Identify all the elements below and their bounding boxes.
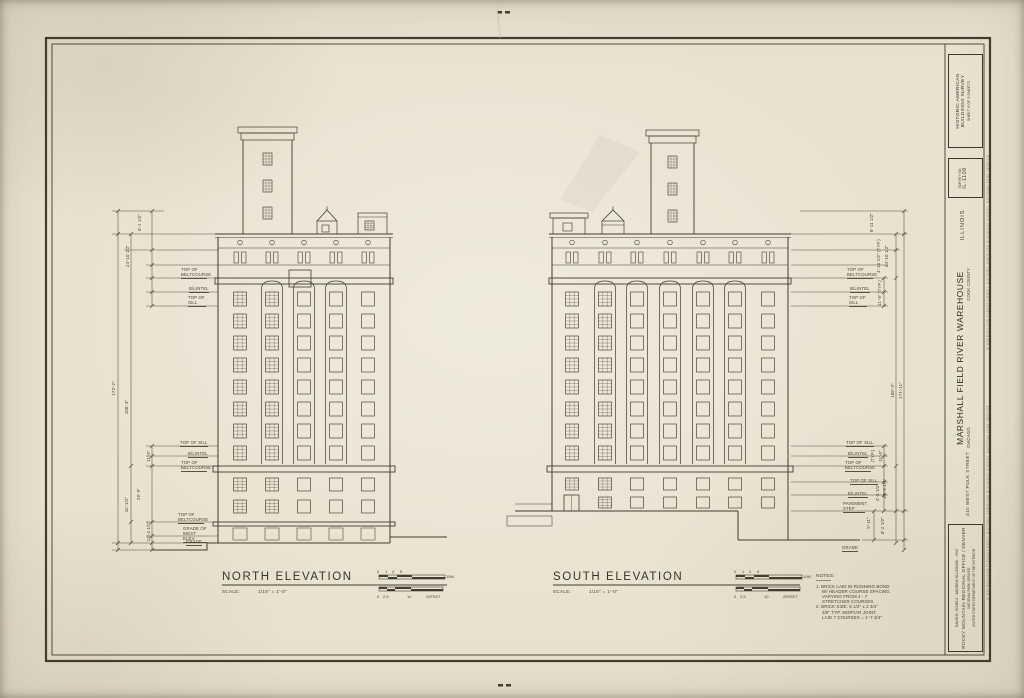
- south-meter-tick: 0: [734, 569, 736, 574]
- north-meter-tick: 10M: [446, 574, 454, 579]
- north-meter-tick: 1: [385, 569, 387, 574]
- dim-label: TOP OF BELTCOURSE: [181, 268, 207, 279]
- agency-department: UNITED STATES DEPARTMENT OF THE INTERIOR: [972, 525, 976, 651]
- dim-label: TOP OF SILL: [849, 296, 867, 307]
- dim-label: TOP OF BELTCOURSE: [845, 461, 871, 472]
- titleblock-credits-cell: DAVID B. SCHELZ · ANDREW KLUSINSKI · 199…: [948, 524, 983, 652]
- survey-number: IL-1108: [962, 159, 968, 197]
- dim-label: B/LINTEL: [848, 452, 868, 458]
- south-elevation-title: SOUTH ELEVATION: [553, 571, 683, 583]
- dim-label: GRADE: [186, 540, 202, 546]
- edge-credit-text: IF REPRODUCED PLEASE CREDIT: HISTORIC AM…: [985, 430, 991, 600]
- dim-label: B/LINTEL: [188, 452, 208, 458]
- north-meter-tick: 0: [377, 569, 379, 574]
- survey-office: ROCKY MOUNTAIN REGIONAL OFFICE / DENVER: [961, 525, 966, 651]
- dim-label: TOP OF SILL: [188, 296, 206, 307]
- north-meter-tick: 5: [400, 569, 402, 574]
- dim-label: TOP OF SILL: [180, 441, 208, 447]
- dim-label: GRADE: [842, 546, 858, 552]
- south-scale-value: 1/16" = 1'-0": [589, 589, 618, 594]
- south-feet-tick: 2.5: [740, 594, 746, 599]
- edge-credit-text: IF REPRODUCED PLEASE CREDIT: HISTORIC AM…: [985, 180, 991, 350]
- south-meter-tick: 1: [742, 569, 744, 574]
- south-meter-tick: 5: [757, 569, 759, 574]
- building-county: COOK COUNTY: [966, 268, 971, 301]
- south-feet-tick: 20FEET: [783, 594, 798, 599]
- building-name: MARSHALL FIELD RIVER WAREHOUSE: [955, 248, 965, 468]
- north-feet-tick: 20FEET: [426, 594, 441, 599]
- delineator-names: DAVID B. SCHELZ · ANDREW KLUSINSKI · 199…: [955, 525, 959, 651]
- north-feet-tick: 0: [377, 594, 379, 599]
- dim-label: PAVEMENT STEP: [843, 502, 865, 513]
- titleblock-building-name: MARSHALL FIELD RIVER WAREHOUSE CHICAGO C…: [943, 248, 985, 468]
- habs-drawing-sheet: NORTH ELEVATION SCALE: 1/16" = 1'-0" 0 1…: [0, 0, 1024, 698]
- titleblock-address: 310 WEST POLK STREET: [961, 452, 975, 516]
- dim-label: TOP OF BELTCOURSE: [181, 461, 207, 472]
- dim-label: TOP OF BELTCOURSE: [178, 513, 204, 524]
- dim-label: B/LINTEL: [848, 492, 868, 498]
- south-feet-tick: 0: [734, 594, 736, 599]
- north-scale-label: SCALE:: [222, 589, 240, 594]
- titleblock-agency-cell: HISTORIC AMERICAN BUILDINGS SURVEY SHEET…: [948, 54, 983, 148]
- south-feet-tick: 10: [764, 594, 768, 599]
- titleblock-state: ILLINOIS: [948, 202, 981, 248]
- agency-name: BUILDINGS SURVEY: [961, 55, 966, 147]
- north-meter-tick: 2: [392, 569, 394, 574]
- notes-title: NOTES:: [816, 574, 834, 579]
- dim-label: TOP OF BELTCOURSE: [847, 268, 873, 279]
- dim-label: TOP OF SILL: [846, 441, 874, 447]
- dim-label: B/LINTEL: [189, 287, 209, 293]
- north-scale-value: 1/16" = 1'-0": [258, 589, 287, 594]
- titleblock-survey-cell: SURVEY NO. IL-1108: [948, 158, 983, 198]
- dim-label: TOP OF SILL: [850, 479, 878, 485]
- sheet-count: SHEET 6 OF 9 SHEETS: [967, 55, 971, 147]
- north-elevation-title: NORTH ELEVATION: [222, 571, 353, 583]
- notes-line: LAID 7 COURSES = 1'-7 3/4": [822, 615, 882, 620]
- south-meter-tick: 2: [749, 569, 751, 574]
- building-city: CHICAGO: [966, 428, 971, 449]
- south-meter-tick: 10M: [803, 574, 811, 579]
- dim-label: B/LINTEL: [850, 287, 870, 293]
- north-feet-tick: 10: [407, 594, 411, 599]
- south-scale-label: SCALE:: [553, 589, 571, 594]
- north-feet-tick: 2.5: [383, 594, 389, 599]
- agency-nps: NATIONAL PARK SERVICE: [967, 525, 971, 651]
